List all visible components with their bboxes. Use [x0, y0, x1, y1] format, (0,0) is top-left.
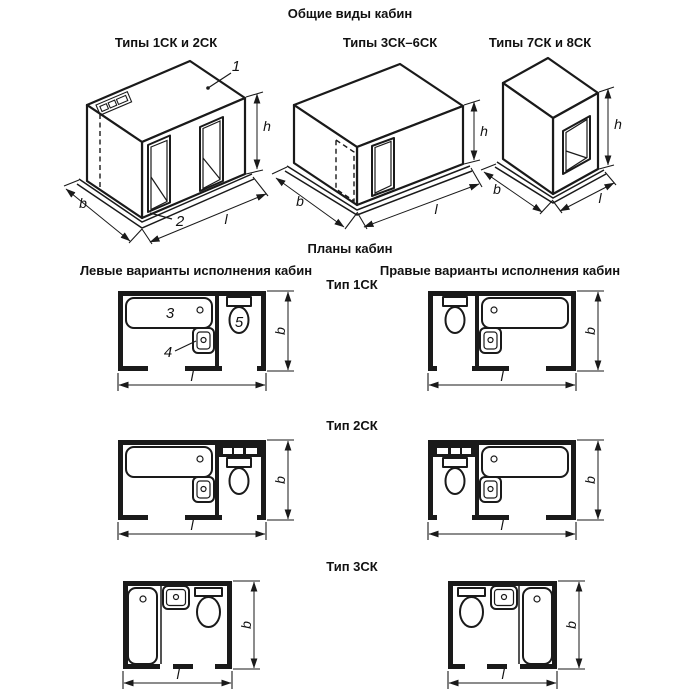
- dim-label-b: b: [79, 195, 87, 211]
- dim-b: b: [267, 440, 294, 520]
- plan-2sk-left: b l: [118, 440, 294, 540]
- dim-label-b: b: [272, 476, 288, 484]
- plan-2sk-right: b l: [428, 440, 604, 540]
- partition-wall: [215, 291, 219, 371]
- dim-label-l: l: [224, 211, 228, 227]
- dim-l: l: [448, 666, 557, 689]
- plan-1sk-right: b l: [428, 291, 604, 391]
- dim-label-b: b: [296, 193, 304, 209]
- callout-toilet: 5: [235, 314, 244, 331]
- callout-roof-panel: 1: [232, 58, 240, 75]
- iso-label-types-7sk-8sk: Типы 7СК и 8СК: [489, 35, 591, 50]
- dim-label-b: b: [493, 181, 501, 197]
- cabin-iso-1: 1 2 h l b: [64, 58, 271, 244]
- partition-wall: [215, 440, 219, 520]
- wall: [261, 291, 266, 371]
- wall: [118, 291, 123, 371]
- dim-label-l: l: [598, 190, 602, 206]
- dim-label-h: h: [480, 123, 488, 139]
- dim-h: h: [464, 100, 488, 164]
- iso-label-types-1sk-2sk: Типы 1СК и 2СК: [115, 35, 217, 50]
- dim-l: l: [428, 368, 576, 391]
- type-label-1sk: Тип 1СК: [326, 277, 378, 292]
- type-label-3sk: Тип 3СК: [326, 559, 378, 574]
- mirrored-plan-body: [428, 440, 576, 520]
- plan-1sk-left: 3 4 5 b l: [118, 291, 294, 391]
- dim-l: l: [118, 368, 266, 391]
- callout-base: 2: [175, 213, 185, 230]
- wall: [257, 515, 266, 520]
- variants-right-header: Правые варианты исполнения кабин: [380, 263, 620, 278]
- dim-label-b: b: [272, 327, 288, 335]
- dim-label-l: l: [434, 201, 438, 217]
- vent-unit-icon: [219, 445, 261, 457]
- variants-left-header: Левые варианты исполнения кабин: [80, 263, 312, 278]
- door-opening: [148, 136, 170, 213]
- dim-b: b: [233, 581, 260, 669]
- dim-label-h: h: [263, 118, 271, 134]
- dim-l: l: [123, 666, 232, 689]
- wall: [118, 515, 148, 520]
- plan-3sk-left: b l: [123, 581, 260, 689]
- washbasin-icon: [163, 586, 189, 609]
- wall: [118, 366, 148, 371]
- general-views-title: Общие виды кабин: [288, 6, 413, 21]
- mirrored-plan-body: [428, 291, 576, 371]
- bathtub-icon: [126, 447, 212, 477]
- section-general-views: Общие виды кабин Типы 1СК и 2СК Типы 3СК…: [64, 6, 622, 244]
- wall: [261, 440, 266, 520]
- dim-b: b: [558, 581, 585, 669]
- dim-b: b: [267, 291, 294, 371]
- dim-l: l: [428, 517, 576, 540]
- plans-title: Планы кабин: [307, 241, 392, 256]
- dim-label-b: b: [582, 327, 598, 335]
- wall: [215, 664, 232, 669]
- dim-label-b: b: [582, 476, 598, 484]
- dim-l: l: [118, 517, 266, 540]
- dim-h: h: [246, 92, 271, 174]
- cabin-iso-3: h l b: [481, 58, 622, 214]
- door-opening: [200, 117, 223, 191]
- leader-dot: [206, 86, 210, 90]
- washbasin-icon: [193, 328, 214, 353]
- callout-bath: 3: [166, 305, 175, 322]
- dim-h: h: [599, 87, 622, 169]
- cabin-iso-2: h l b: [272, 64, 488, 229]
- callout-sink: 4: [164, 344, 172, 361]
- plan-3sk-right: b l: [448, 581, 585, 689]
- bathtub-icon: [128, 588, 157, 664]
- standard-drawing: Общие виды кабин Типы 1СК и 2СК Типы 3СК…: [0, 0, 700, 700]
- type-label-2sk: Тип 2СК: [326, 418, 378, 433]
- mirrored-plan-body: [448, 581, 557, 669]
- door-opening: [372, 138, 394, 196]
- washbasin-icon: [193, 477, 214, 502]
- toilet-icon: [227, 458, 251, 494]
- wall: [257, 366, 266, 371]
- wall: [118, 440, 123, 520]
- dim-b: b: [577, 440, 604, 520]
- wall: [227, 581, 232, 669]
- dim-b: b: [577, 291, 604, 371]
- dim-label-b: b: [238, 621, 254, 629]
- section-plans: Планы кабин Левые варианты исполнения ка…: [80, 241, 620, 689]
- drawing-sheet: Общие виды кабин Типы 1СК и 2СК Типы 3СК…: [0, 0, 700, 700]
- toilet-icon: [195, 588, 222, 627]
- dim-label-h: h: [614, 116, 622, 132]
- wall: [118, 440, 266, 445]
- wall: [118, 291, 266, 296]
- iso-label-types-3sk-6sk: Типы 3СК–6СК: [343, 35, 437, 50]
- dim-label-b: b: [563, 621, 579, 629]
